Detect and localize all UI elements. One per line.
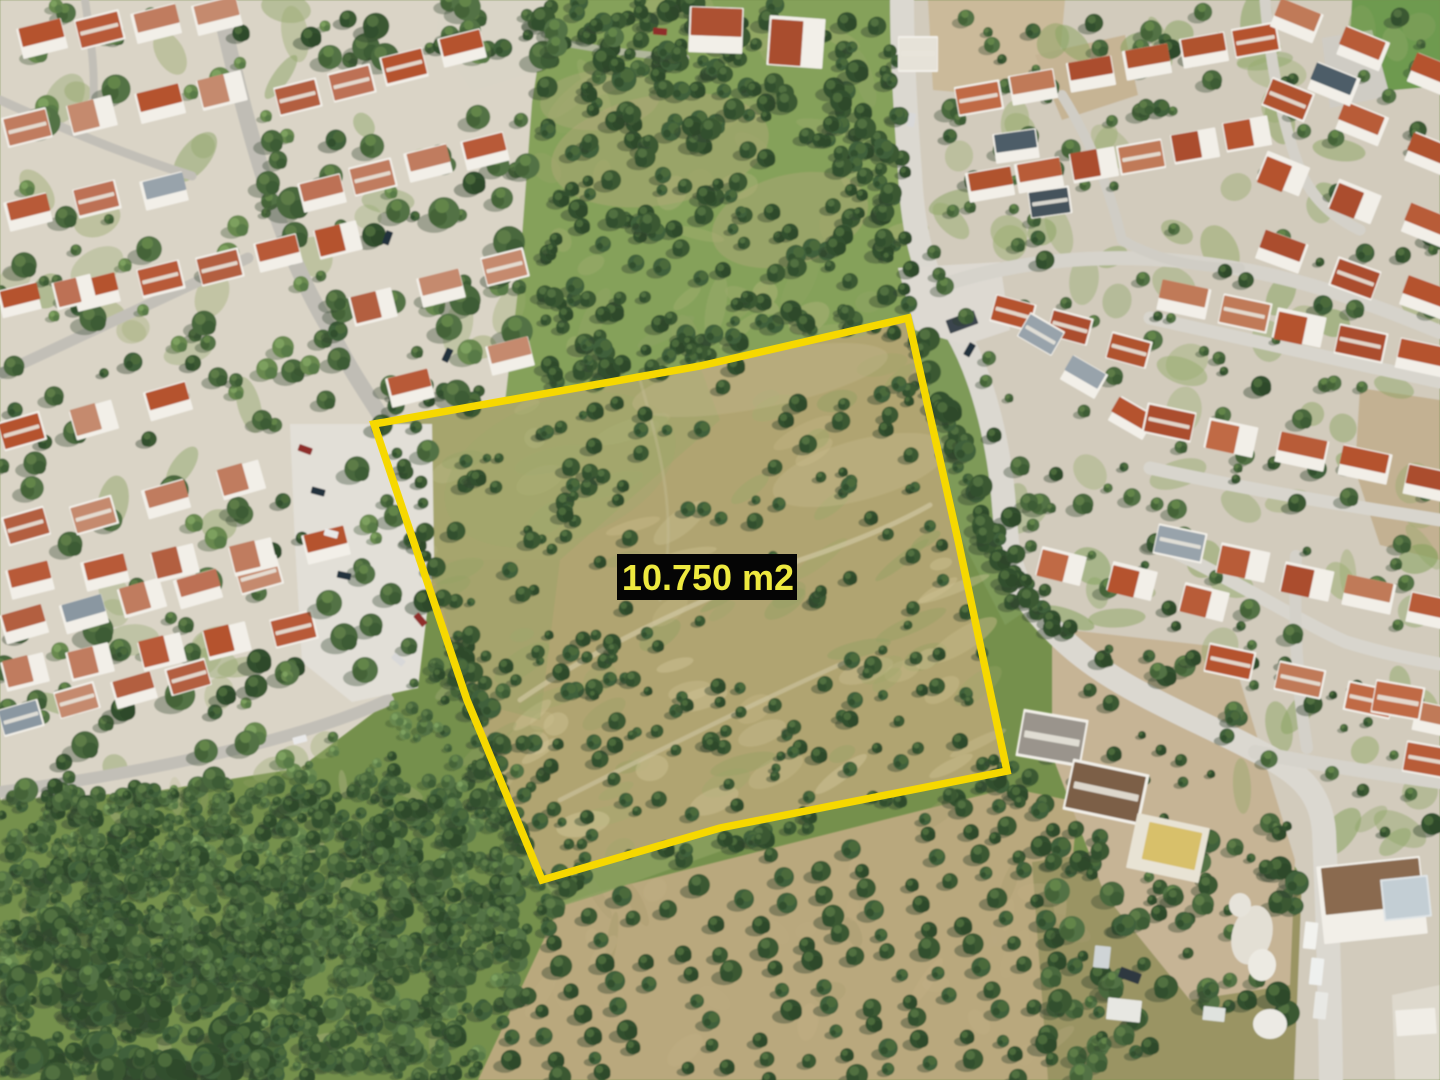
svg-text:10.750 m2: 10.750 m2 [622, 557, 794, 598]
